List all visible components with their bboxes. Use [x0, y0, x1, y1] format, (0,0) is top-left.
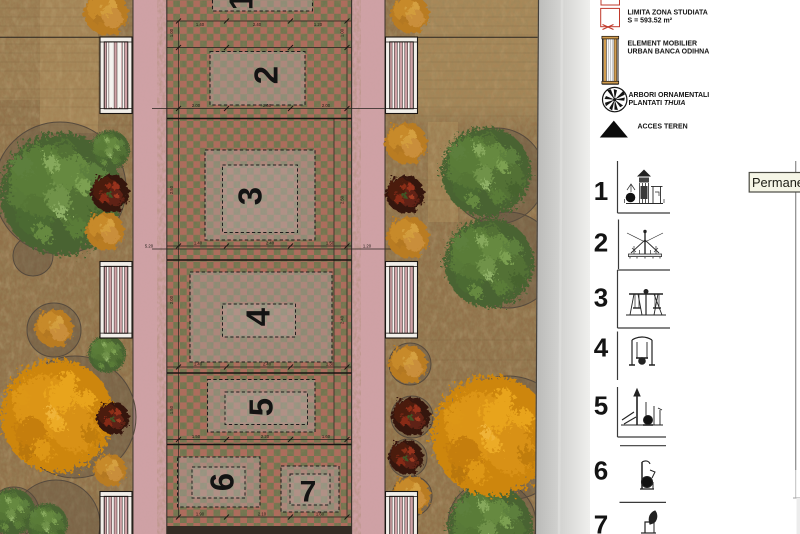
svg-text:1.20: 1.20 [363, 244, 372, 249]
svg-text:2.20: 2.20 [261, 434, 270, 439]
svg-text:7: 7 [594, 510, 608, 534]
svg-text:Permane: Permane [752, 175, 800, 190]
svg-text:6: 6 [204, 473, 241, 491]
svg-text:2.60: 2.60 [263, 103, 272, 108]
svg-text:3: 3 [232, 187, 269, 205]
svg-text:URBAN BANCA ODIHNA: URBAN BANCA ODIHNA [628, 49, 710, 56]
svg-text:1.50: 1.50 [169, 405, 174, 414]
svg-text:1.50: 1.50 [326, 241, 335, 246]
svg-text:1.00: 1.00 [340, 28, 345, 37]
svg-text:1.40: 1.40 [194, 362, 203, 367]
svg-text:5.20: 5.20 [145, 244, 154, 249]
svg-text:2.00: 2.00 [322, 103, 331, 108]
svg-text:S = 593.52 m²: S = 593.52 m² [628, 18, 673, 25]
svg-text:5: 5 [594, 391, 608, 421]
svg-text:ELEMENT MOBILIER: ELEMENT MOBILIER [628, 41, 698, 48]
svg-text:2.50: 2.50 [340, 195, 345, 204]
svg-text:2.10: 2.10 [258, 512, 267, 517]
svg-text:1.30: 1.30 [326, 362, 335, 367]
svg-text:6: 6 [594, 456, 608, 486]
svg-text:2.40: 2.40 [263, 362, 272, 367]
svg-text:2.40: 2.40 [253, 22, 262, 27]
svg-text:ACCES TEREN: ACCES TEREN [638, 124, 688, 131]
svg-text:1.40: 1.40 [196, 22, 205, 27]
svg-text:2: 2 [594, 228, 608, 258]
svg-text:7: 7 [300, 476, 317, 509]
svg-text:5: 5 [243, 398, 280, 416]
svg-text:ARBORI ORNAMENTALI: ARBORI ORNAMENTALI [629, 92, 710, 99]
svg-text:1: 1 [223, 0, 260, 10]
svg-text:2.00: 2.00 [169, 295, 174, 304]
svg-text:PLANTATI THUIA: PLANTATI THUIA [629, 100, 686, 107]
svg-text:LIMITA ZONA STUDIATA: LIMITA ZONA STUDIATA [628, 10, 708, 17]
svg-text:2.40: 2.40 [266, 241, 275, 246]
svg-text:4: 4 [240, 307, 277, 326]
svg-text:1.20: 1.20 [314, 22, 323, 27]
svg-text:2.50: 2.50 [169, 185, 174, 194]
svg-text:4: 4 [594, 333, 609, 363]
svg-text:1: 1 [594, 176, 608, 206]
svg-text:1.90: 1.90 [196, 512, 205, 517]
svg-text:1.40: 1.40 [194, 241, 203, 246]
svg-text:3: 3 [594, 283, 608, 313]
svg-text:1.00: 1.00 [169, 28, 174, 37]
svg-text:1.50: 1.50 [192, 434, 201, 439]
svg-text:2.00: 2.00 [192, 103, 201, 108]
svg-text:2.40: 2.40 [340, 315, 345, 324]
svg-text:1.60: 1.60 [322, 434, 331, 439]
svg-text:2: 2 [248, 66, 285, 84]
svg-text:1.60: 1.60 [316, 512, 325, 517]
